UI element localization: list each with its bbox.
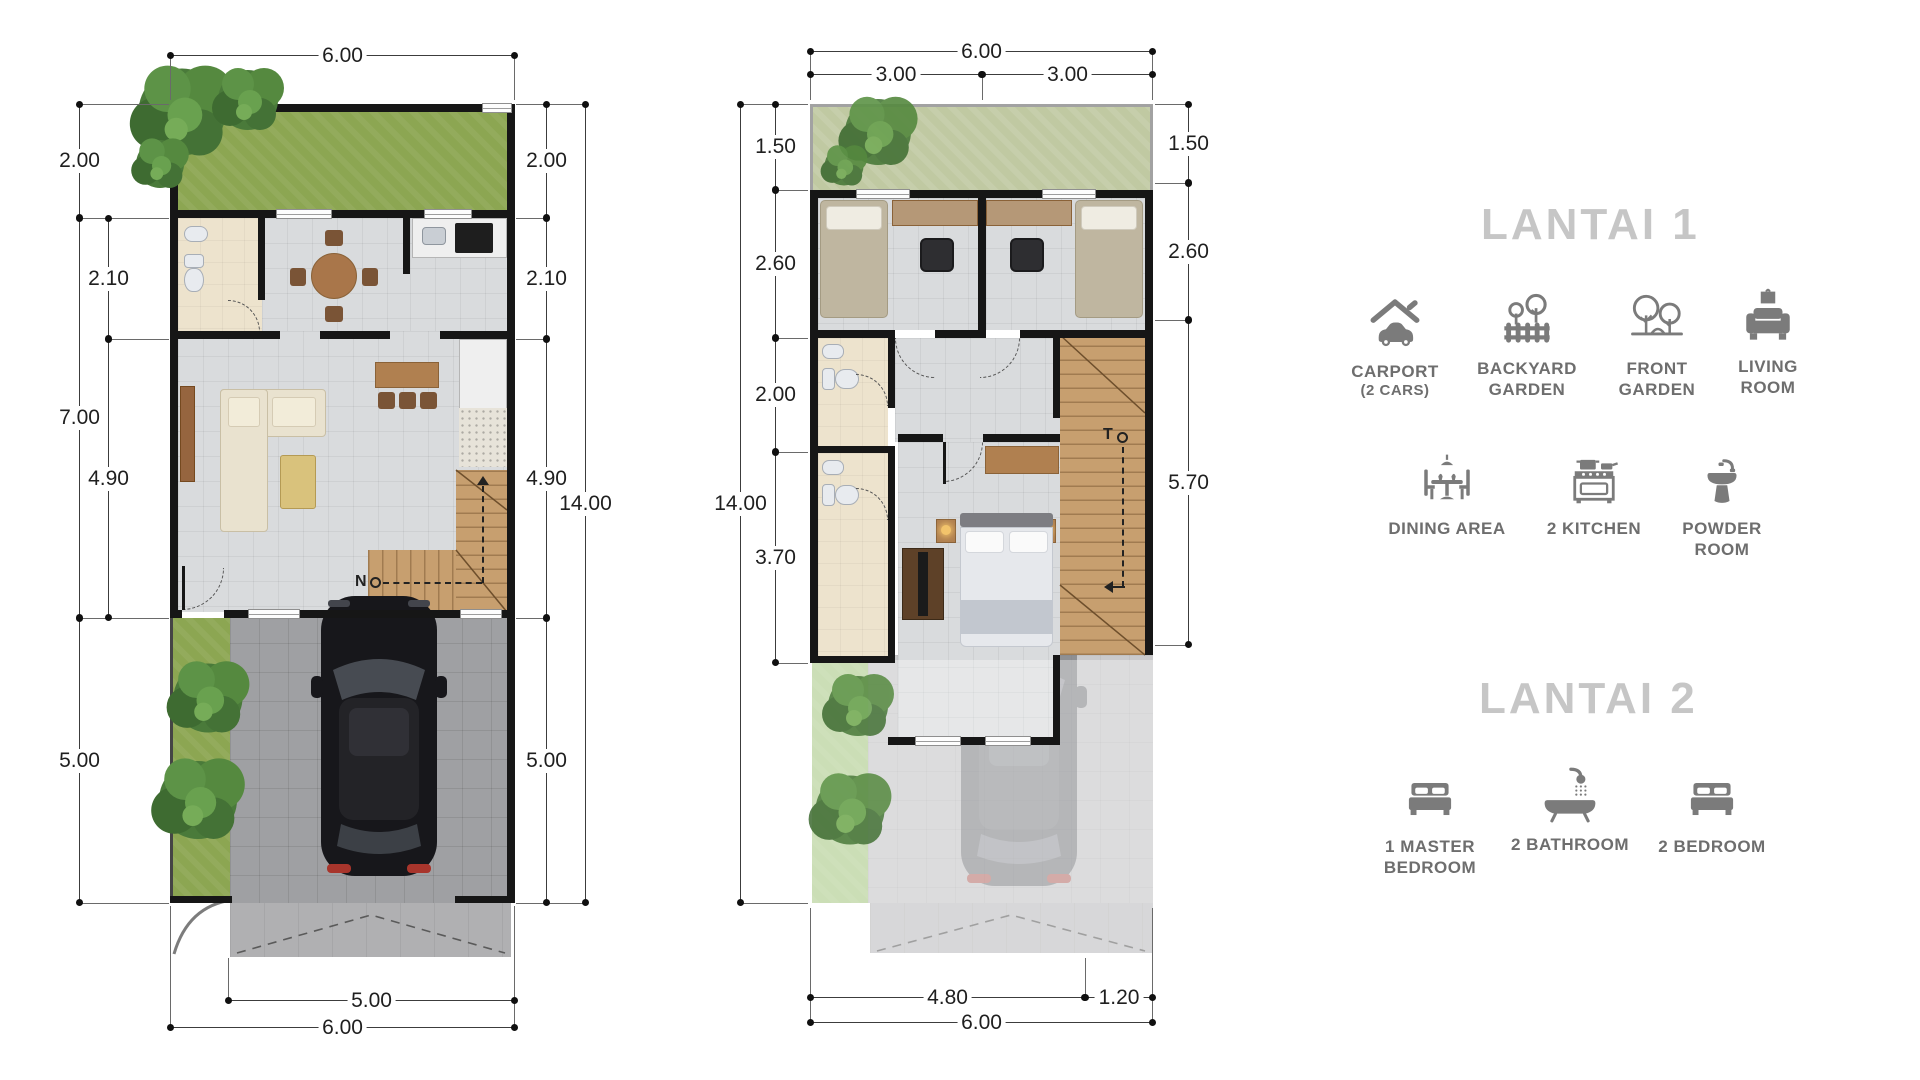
driveway-marking [233, 905, 509, 957]
wall [983, 434, 1060, 442]
wall [170, 610, 182, 618]
wall [455, 896, 515, 903]
dimension: 5.00 [546, 618, 547, 903]
stairs-route-start [1117, 432, 1128, 443]
curb-curve [170, 896, 234, 958]
dimension: 2.60 [775, 190, 776, 338]
dining-area-icon [1419, 452, 1475, 508]
wall [810, 330, 895, 338]
dimension: 7.00 [79, 218, 80, 618]
work-table [375, 362, 439, 388]
dimension: 2.00 [79, 104, 80, 218]
wall [258, 218, 265, 300]
bed-master-headboard [960, 513, 1053, 527]
stairs-route-arrow [477, 476, 489, 485]
legend-label: POWDER ROOM [1670, 518, 1774, 561]
front-garden-icon [1628, 290, 1686, 348]
wall [507, 104, 515, 903]
bed-pillow [1081, 206, 1137, 230]
stairs-landing-lines [1060, 335, 1145, 655]
kitchen-sink [422, 227, 446, 245]
wall [810, 446, 895, 453]
legend-label: 1 MASTER BEDROOM [1371, 836, 1489, 879]
dimension: 14.00 [585, 104, 586, 903]
bed-pillow [965, 531, 1004, 553]
master-bedroom-icon [1403, 772, 1457, 826]
legend-item-kitchen: 2 KITCHEN [1524, 452, 1664, 539]
carport-icon [1366, 293, 1424, 351]
work-chair [378, 392, 395, 409]
dimension: 2.00 [775, 338, 776, 452]
wardrobe-front [918, 552, 928, 616]
wall [978, 190, 986, 338]
dimension: 3.00 [982, 74, 1153, 75]
legend-item-powder-room: POWDER ROOM [1670, 452, 1774, 561]
sink [822, 344, 844, 359]
sofa-cushion [228, 397, 260, 427]
wall [898, 434, 943, 442]
living-room-icon [1739, 288, 1797, 346]
window [985, 736, 1031, 746]
dimension: 14.00 [740, 104, 741, 903]
dimension: 6.00 [170, 1027, 515, 1028]
legend-label: BACKYARD GARDEN [1469, 358, 1585, 401]
kitchen-icon [1566, 452, 1622, 508]
desk [892, 200, 978, 226]
bathroom-icon [1541, 758, 1599, 824]
legend-label: FRONT GARDEN [1607, 358, 1707, 401]
door-leaf [943, 442, 946, 484]
wall [888, 338, 895, 408]
bed-pillow [826, 206, 882, 230]
tv-console [180, 386, 195, 482]
toilet [822, 368, 835, 390]
dimension: 4.90 [546, 339, 547, 618]
legend-item-dining-area: DINING AREA [1362, 452, 1532, 539]
dimension: 2.10 [546, 218, 547, 339]
front-door-leaf [182, 566, 185, 610]
toilet [822, 484, 835, 506]
dimension: 5.00 [79, 618, 80, 903]
backyard-garden-icon [1498, 290, 1556, 348]
office-chair [1010, 238, 1044, 272]
wall [1145, 190, 1153, 655]
legend-label: 2 BATHROOM [1511, 834, 1629, 855]
wall [810, 190, 818, 663]
dimension: 6.00 [170, 55, 515, 56]
window [460, 609, 502, 619]
office-chair [920, 238, 954, 272]
legend-label: 2 KITCHEN [1547, 518, 1641, 539]
tree [120, 60, 300, 190]
legend-item-master-bedroom: 1 MASTER BEDROOM [1371, 772, 1489, 879]
wall [935, 330, 980, 338]
lantai-1-title: LANTAI 1 [1481, 200, 1700, 250]
sink [184, 226, 208, 242]
legend-label: DINING AREA [1388, 518, 1505, 539]
stairs-route [1122, 447, 1124, 587]
tree [140, 640, 280, 880]
sofa-cushion [272, 397, 316, 427]
stairs-down-label: T [1103, 426, 1113, 444]
wall [320, 331, 390, 339]
dimension: 1.50 [775, 104, 776, 190]
lantai-2-title: LANTAI 2 [1479, 674, 1698, 724]
sink [822, 460, 844, 475]
legend-item-backyard-garden: BACKYARD GARDEN [1469, 290, 1585, 401]
wall [1053, 655, 1060, 745]
legend-item-bedroom: 2 BEDROOM [1642, 772, 1782, 857]
wall [403, 218, 410, 274]
bed-throw [960, 600, 1053, 634]
wall [170, 896, 232, 903]
legend-label: CARPORT [1351, 361, 1439, 382]
wall [888, 543, 895, 663]
window [1042, 189, 1096, 199]
work-chair [420, 392, 437, 409]
dimension: 6.00 [810, 1022, 1153, 1023]
window [276, 209, 332, 219]
desk [986, 200, 1072, 226]
window [424, 209, 472, 219]
floorplan-sheet: N [0, 0, 1920, 1080]
dining-chair [362, 268, 378, 286]
dimension: 6.00 [810, 51, 1153, 52]
wall [440, 331, 515, 339]
dimension: 5.00 [228, 1000, 515, 1001]
dining-table-round [311, 253, 357, 299]
stairs-route [383, 582, 482, 584]
wall [1053, 330, 1060, 418]
wall [888, 453, 895, 543]
stairs-route-arrow [1104, 581, 1113, 593]
dimension: 3.00 [810, 74, 982, 75]
dimension: 1.20 [1085, 997, 1153, 998]
legend-item-carport: CARPORT (2 CARS) [1335, 293, 1455, 399]
legend-label: LIVING ROOM [1723, 356, 1813, 399]
legend-item-bathroom: 2 BATHROOM [1495, 758, 1645, 855]
wall [1020, 330, 1153, 338]
bed-pillow [1009, 531, 1048, 553]
dining-chair [325, 230, 343, 246]
dimension: 4.80 [810, 997, 1085, 998]
nightstand-lamp [941, 525, 951, 535]
dining-chair [290, 268, 306, 286]
dimension: 4.90 [108, 339, 109, 618]
window [248, 609, 300, 619]
stairs-route [482, 486, 484, 583]
legend-label: 2 BEDROOM [1658, 836, 1765, 857]
dimension: 2.00 [546, 104, 547, 218]
counter-terrazzo [459, 408, 507, 467]
legend-item-front-garden: FRONT GARDEN [1607, 290, 1707, 401]
stairs-up-label: N [355, 573, 367, 591]
car-suv-black [308, 590, 450, 882]
legend-item-living-room: LIVING ROOM [1723, 288, 1813, 399]
dimension: 5.70 [1188, 320, 1189, 645]
backyard-gate [482, 103, 512, 113]
toilet-bowl [184, 268, 204, 292]
wall [170, 331, 280, 339]
coffee-table [280, 455, 316, 509]
toilet [184, 254, 204, 268]
stairs-route [1113, 586, 1125, 588]
bedroom-icon [1685, 772, 1739, 826]
tree [810, 80, 970, 200]
dining-chair [325, 306, 343, 322]
work-chair [399, 392, 416, 409]
hall-cabinet [985, 446, 1059, 474]
dimension: 3.70 [775, 452, 776, 663]
tree [800, 650, 930, 890]
powder-room-icon [1694, 452, 1750, 508]
stove [455, 223, 493, 253]
stairs-route-start [370, 577, 381, 588]
dimension: 2.60 [1188, 183, 1189, 320]
legend-sublabel: (2 CARS) [1360, 382, 1429, 399]
dimension: 1.50 [1188, 104, 1189, 183]
dimension: 2.10 [108, 218, 109, 339]
